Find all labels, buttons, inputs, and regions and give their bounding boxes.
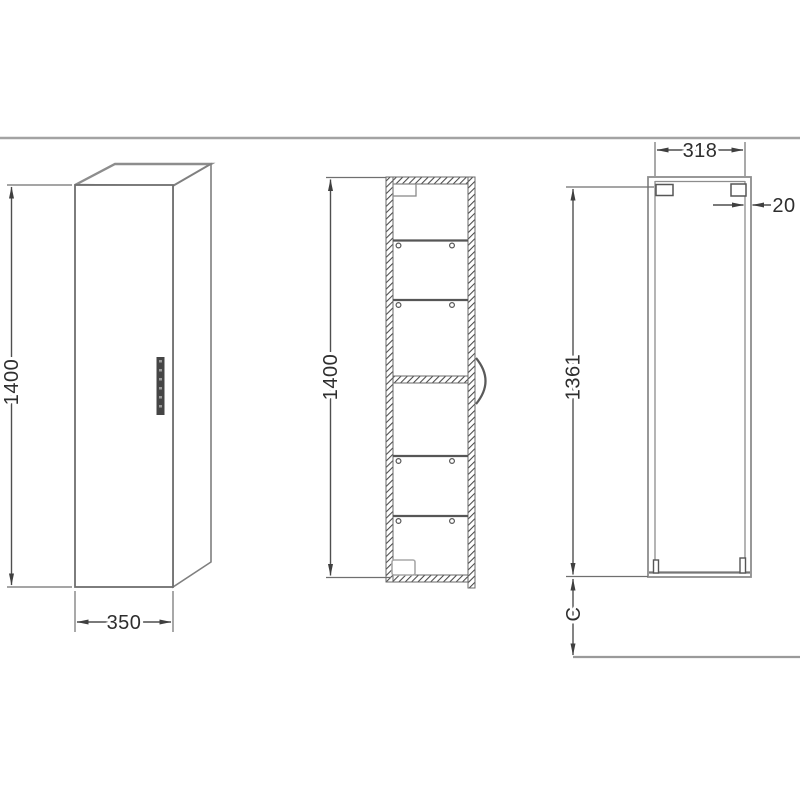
shelf-pin	[396, 459, 401, 464]
bracket-bottom-left	[654, 560, 659, 573]
adjustable-shelf	[393, 516, 468, 523]
shelf-pin	[450, 459, 455, 464]
fixed-shelf-section	[393, 376, 468, 383]
dimension-value: 350	[107, 612, 142, 634]
shelf-pin	[396, 243, 401, 248]
dimension-floor-offset-c: C	[563, 579, 800, 657]
shelf-pin	[396, 303, 401, 308]
back-panel-section	[386, 177, 393, 582]
side-section-view: 1400	[320, 177, 486, 588]
shelf-pin	[450, 303, 455, 308]
top-panel-section	[393, 177, 468, 184]
dimension-value: 20	[772, 195, 795, 217]
drawing-canvas: 1400 350	[0, 0, 800, 800]
shelf-pin	[450, 243, 455, 248]
adjustable-shelf	[393, 241, 468, 248]
door-handle-profile	[476, 358, 486, 404]
top-mounting-rail	[393, 184, 416, 196]
bottom-mounting-rail	[392, 560, 415, 575]
bracket-bottom-right	[740, 558, 746, 573]
dimension-hanging-height-1361: 1361	[563, 187, 655, 577]
front-perspective-view: 1400 350	[1, 164, 211, 634]
rear-elevation-view: 318 20 1361 C	[563, 140, 800, 657]
dimension-value: 1400	[320, 354, 342, 401]
cabinet-technical-drawing: 1400 350	[0, 0, 800, 800]
bottom-panel-section	[393, 575, 468, 582]
shelf-pin	[396, 519, 401, 524]
dimension-height-1400-section: 1400	[320, 178, 391, 578]
cabinet-side-face	[173, 164, 211, 587]
hanging-bracket-top-left	[656, 185, 673, 196]
dimension-inner-width-318: 318	[655, 140, 745, 176]
cabinet-rear-outline	[648, 177, 751, 577]
dimension-height-1400-perspective: 1400	[1, 185, 72, 587]
adjustable-shelf	[393, 456, 468, 463]
dimension-width-350: 350	[75, 591, 173, 634]
dimension-value: C	[563, 607, 585, 622]
adjustable-shelf	[393, 300, 468, 307]
dimension-value: 1361	[563, 354, 585, 401]
dimension-value: 318	[683, 140, 718, 162]
hanging-bracket-top-right	[731, 184, 746, 196]
dimension-value: 1400	[1, 359, 23, 406]
door-panel-section	[468, 177, 475, 588]
shelf-pin	[450, 519, 455, 524]
